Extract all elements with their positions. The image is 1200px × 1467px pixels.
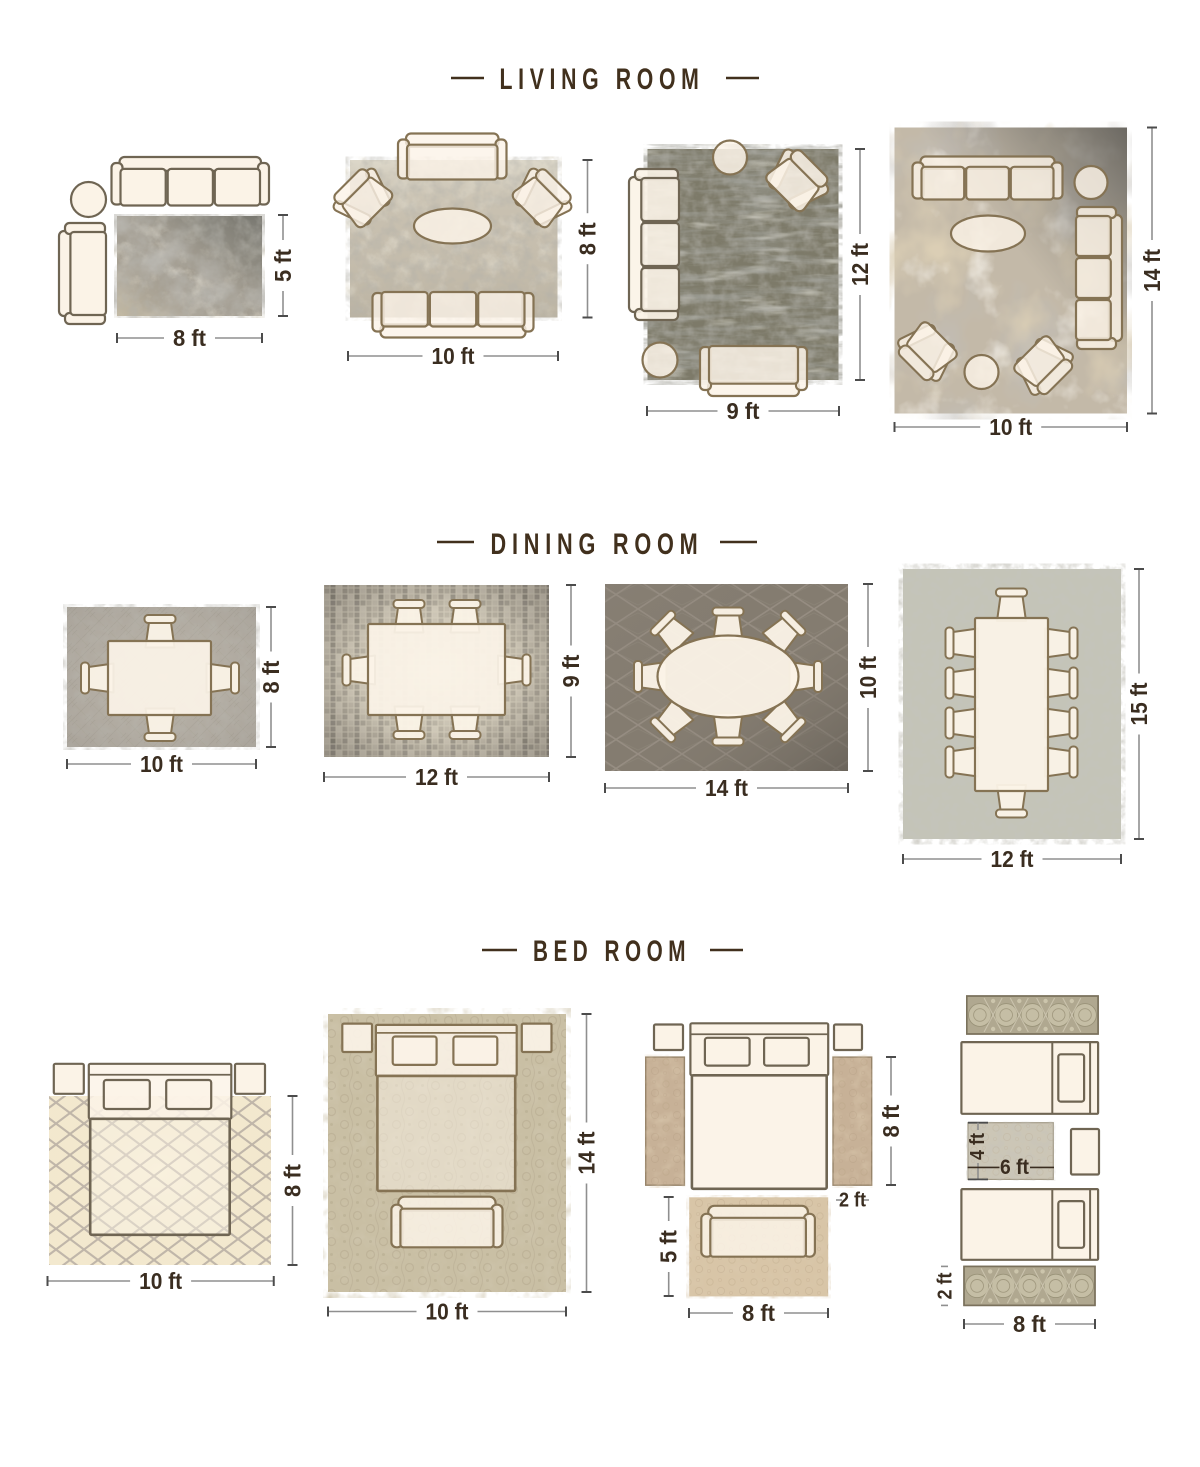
svg-text:8 ft: 8 ft (1013, 1311, 1046, 1337)
svg-text:LIVING ROOM: LIVING ROOM (500, 63, 705, 96)
svg-text:10 ft: 10 ft (432, 343, 475, 369)
svg-text:12 ft: 12 ft (991, 846, 1034, 872)
svg-text:BED ROOM: BED ROOM (533, 935, 691, 968)
svg-text:10 ft: 10 ft (989, 414, 1032, 440)
svg-text:5 ft: 5 ft (270, 249, 296, 282)
svg-text:14 ft: 14 ft (1139, 249, 1165, 292)
svg-text:12 ft: 12 ft (847, 243, 873, 286)
svg-text:8 ft: 8 ft (878, 1104, 904, 1137)
svg-text:10 ft: 10 ft (426, 1299, 469, 1325)
svg-text:10 ft: 10 ft (855, 656, 881, 699)
svg-text:10 ft: 10 ft (139, 1268, 182, 1294)
svg-text:9 ft: 9 ft (558, 654, 584, 687)
svg-text:8 ft: 8 ft (258, 660, 284, 693)
svg-text:12 ft: 12 ft (415, 764, 458, 790)
svg-text:4 ft: 4 ft (967, 1133, 989, 1160)
svg-text:8 ft: 8 ft (575, 222, 601, 255)
svg-text:15 ft: 15 ft (1126, 682, 1152, 725)
svg-text:8 ft: 8 ft (742, 1300, 775, 1326)
svg-text:5 ft: 5 ft (656, 1230, 682, 1263)
svg-text:9 ft: 9 ft (727, 398, 760, 424)
svg-text:14 ft: 14 ft (705, 775, 748, 801)
svg-text:DINING ROOM: DINING ROOM (491, 528, 704, 561)
svg-text:8 ft: 8 ft (280, 1164, 306, 1197)
svg-text:14 ft: 14 ft (574, 1131, 600, 1174)
svg-text:2 ft: 2 ft (839, 1190, 866, 1212)
svg-text:8 ft: 8 ft (173, 325, 206, 351)
svg-text:6 ft: 6 ft (1000, 1156, 1029, 1179)
svg-text:2 ft: 2 ft (935, 1272, 957, 1299)
svg-text:10 ft: 10 ft (140, 751, 183, 777)
